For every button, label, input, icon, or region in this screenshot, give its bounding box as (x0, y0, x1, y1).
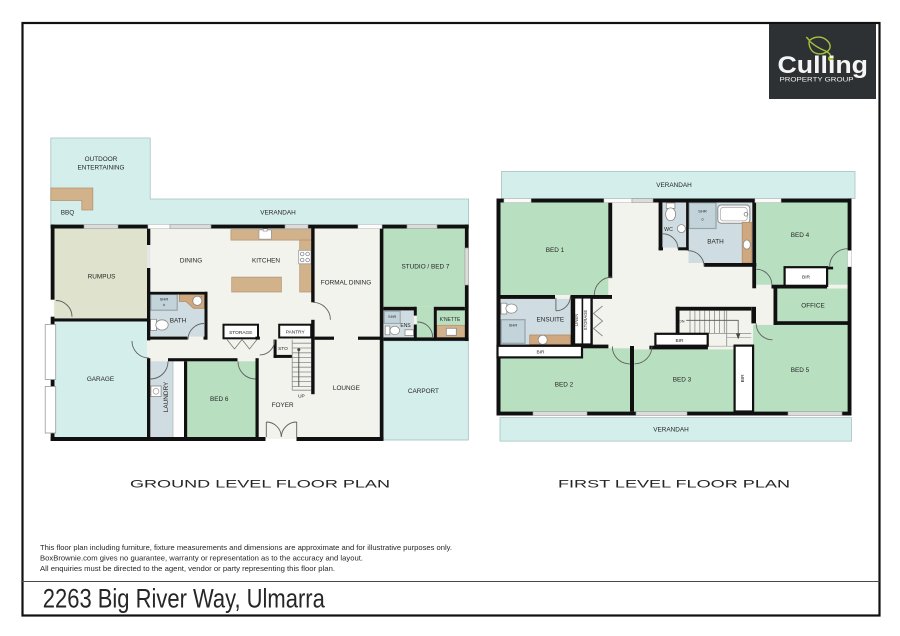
svg-text:2263 Big River Way, Ulmarra: 2263 Big River Way, Ulmarra (43, 584, 325, 614)
svg-text:BIR: BIR (802, 275, 811, 281)
svg-text:SHR: SHR (160, 297, 169, 302)
svg-text:BED 6: BED 6 (210, 396, 229, 403)
svg-text:UP: UP (298, 394, 305, 400)
svg-text:FIRST LEVEL FLOOR PLAN: FIRST LEVEL FLOOR PLAN (558, 479, 790, 491)
svg-text:SHR: SHR (698, 209, 707, 214)
svg-text:SHR: SHR (388, 315, 396, 319)
svg-text:VERANDAH: VERANDAH (656, 182, 692, 189)
svg-text:OUTDOOR: OUTDOOR (85, 156, 118, 163)
svg-text:BBQ: BBQ (61, 210, 75, 217)
svg-text:LAUNDRY: LAUNDRY (163, 381, 170, 412)
svg-text:This floor plan including furn: This floor plan including furniture, fix… (40, 543, 452, 552)
svg-text:ENS: ENS (400, 323, 411, 329)
svg-text:BIR: BIR (740, 374, 746, 383)
svg-text:SHR: SHR (509, 323, 518, 328)
svg-text:DINING: DINING (180, 258, 202, 265)
svg-text:BoxBrownie.com gives no guaran: BoxBrownie.com gives no guarantee, warra… (40, 554, 363, 563)
svg-text:BED 2: BED 2 (555, 382, 574, 389)
svg-text:STORAGE: STORAGE (229, 330, 252, 336)
svg-text:ENTERTAINING: ENTERTAINING (78, 165, 125, 172)
svg-text:LOUNGE: LOUNGE (333, 385, 360, 392)
svg-text:BED 5: BED 5 (791, 367, 810, 374)
svg-text:STUDIO / BED 7: STUDIO / BED 7 (402, 264, 450, 271)
svg-text:FOYER: FOYER (272, 402, 294, 409)
svg-text:VERANDAH: VERANDAH (653, 427, 689, 434)
svg-text:BED 3: BED 3 (673, 377, 692, 384)
svg-text:BATH: BATH (707, 239, 724, 246)
svg-text:Culling: Culling (778, 52, 869, 79)
svg-text:STORAGE: STORAGE (583, 310, 588, 331)
svg-text:K'NETTE: K'NETTE (440, 317, 461, 323)
svg-text:GARAGE: GARAGE (87, 376, 114, 383)
svg-text:LINEN: LINEN (574, 314, 579, 326)
svg-text:All enquiries must be directed: All enquiries must be directed to the ag… (40, 564, 335, 573)
svg-text:ENSUITE: ENSUITE (536, 317, 564, 324)
svg-text:FORMAL DINING: FORMAL DINING (321, 280, 372, 287)
svg-text:GROUND LEVEL FLOOR PLAN: GROUND LEVEL FLOOR PLAN (130, 479, 390, 491)
svg-text:WC: WC (664, 227, 673, 233)
svg-text:BIR: BIR (676, 338, 685, 344)
svg-text:BED 4: BED 4 (791, 232, 810, 239)
svg-text:BATH: BATH (170, 318, 187, 325)
svg-text:STO: STO (278, 346, 288, 352)
svg-text:KITCHEN: KITCHEN (252, 258, 280, 265)
svg-text:BED 1: BED 1 (546, 247, 565, 254)
svg-text:CARPORT: CARPORT (408, 388, 439, 395)
svg-text:OFFICE: OFFICE (801, 303, 824, 310)
svg-text:PROPERTY GROUP: PROPERTY GROUP (780, 78, 854, 84)
svg-text:BIR: BIR (537, 350, 546, 356)
svg-text:PANTRY: PANTRY (286, 330, 306, 336)
svg-text:VERANDAH: VERANDAH (260, 210, 296, 217)
svg-text:DN: DN (679, 319, 685, 324)
svg-text:RUMPUS: RUMPUS (88, 274, 116, 281)
